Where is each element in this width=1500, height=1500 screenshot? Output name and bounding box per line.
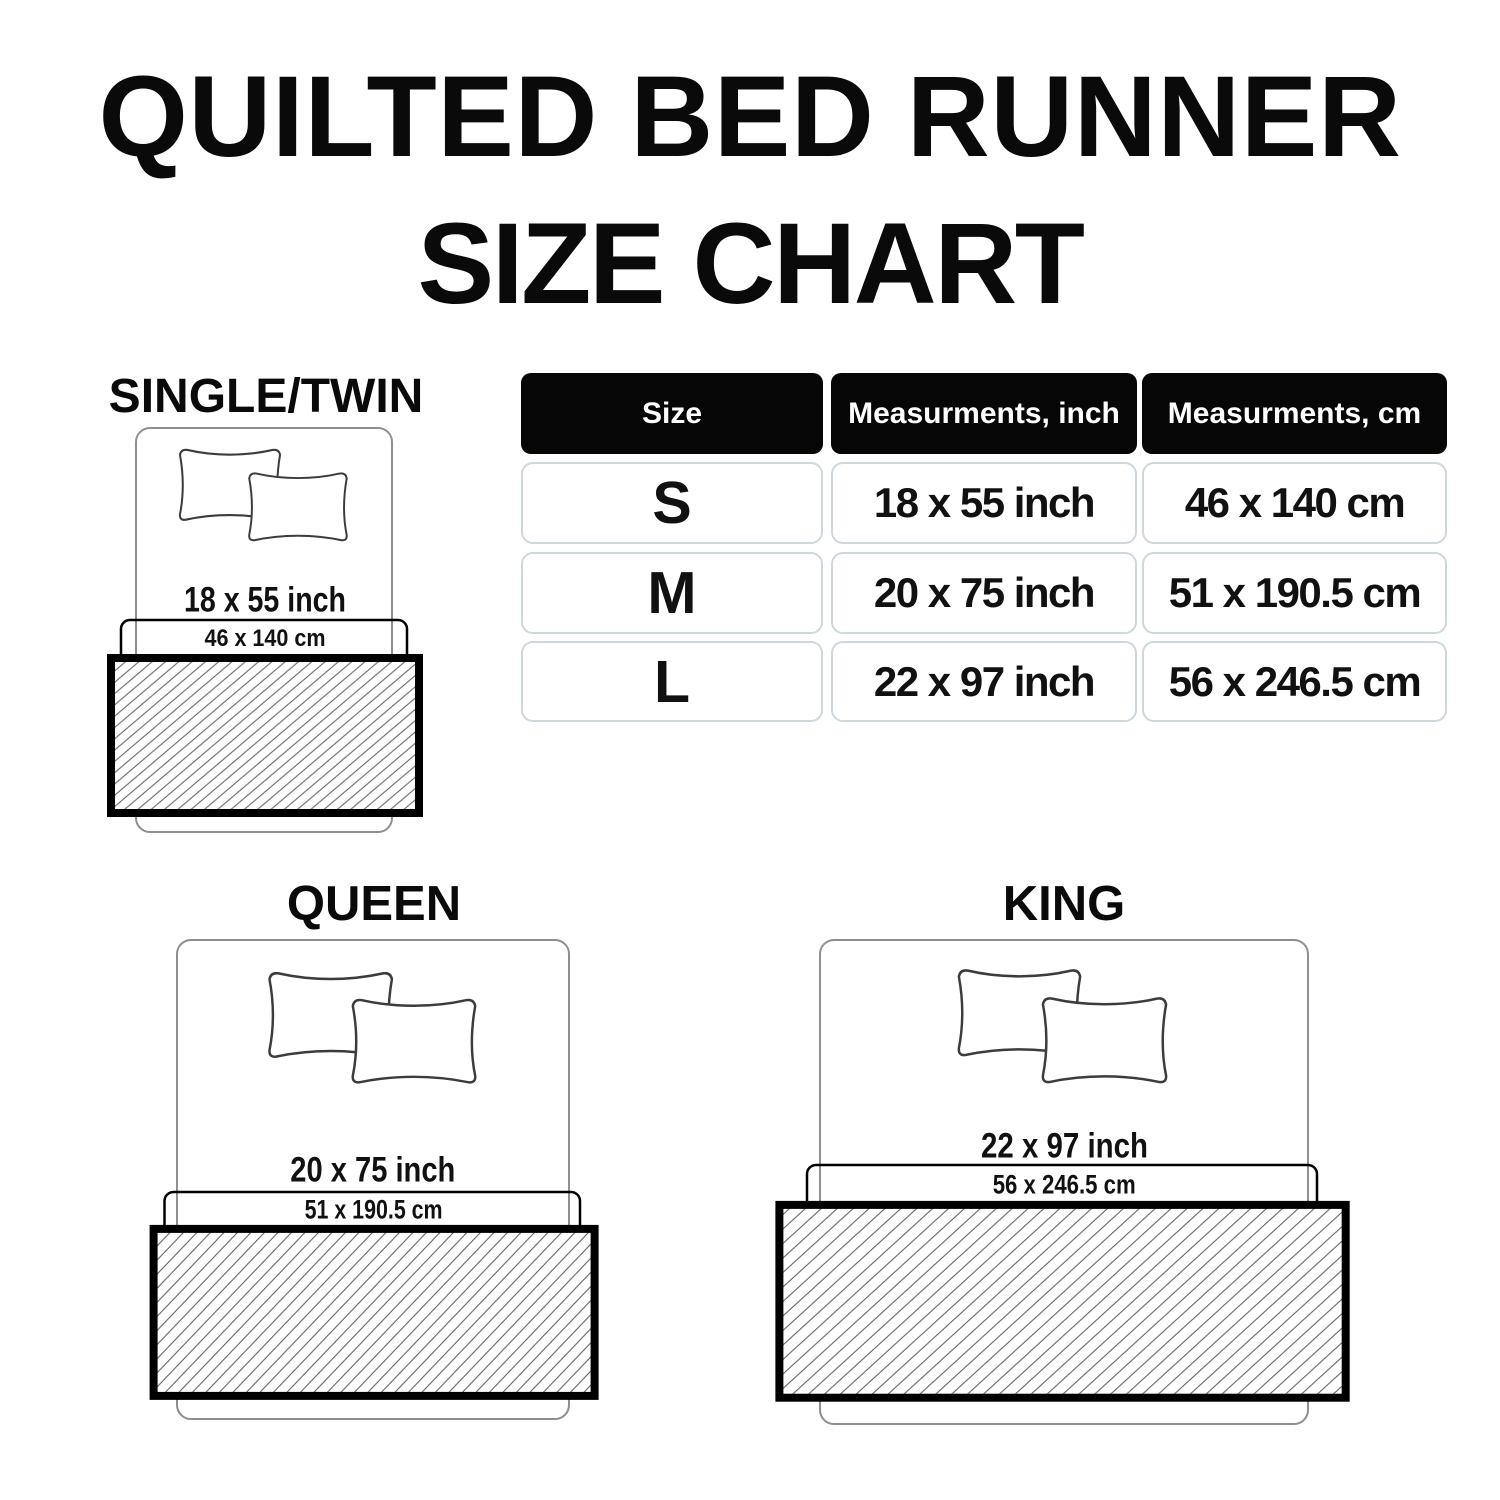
svg-text:20 x 75 inch: 20 x 75 inch — [290, 1151, 455, 1190]
svg-text:51 x 190.5 cm: 51 x 190.5 cm — [305, 1195, 443, 1225]
svg-text:QUEEN: QUEEN — [287, 877, 461, 931]
svg-text:22 x 97 inch: 22 x 97 inch — [981, 1127, 1148, 1166]
svg-text:56 x 246.5 cm: 56 x 246.5 cm — [993, 1170, 1136, 1200]
svg-text:KING: KING — [1003, 877, 1126, 931]
svg-text:SINGLE/TWIN: SINGLE/TWIN — [109, 370, 424, 423]
svg-text:18 x 55 inch: 18 x 55 inch — [184, 581, 346, 620]
svg-text:46 x 140 cm: 46 x 140 cm — [205, 625, 326, 652]
